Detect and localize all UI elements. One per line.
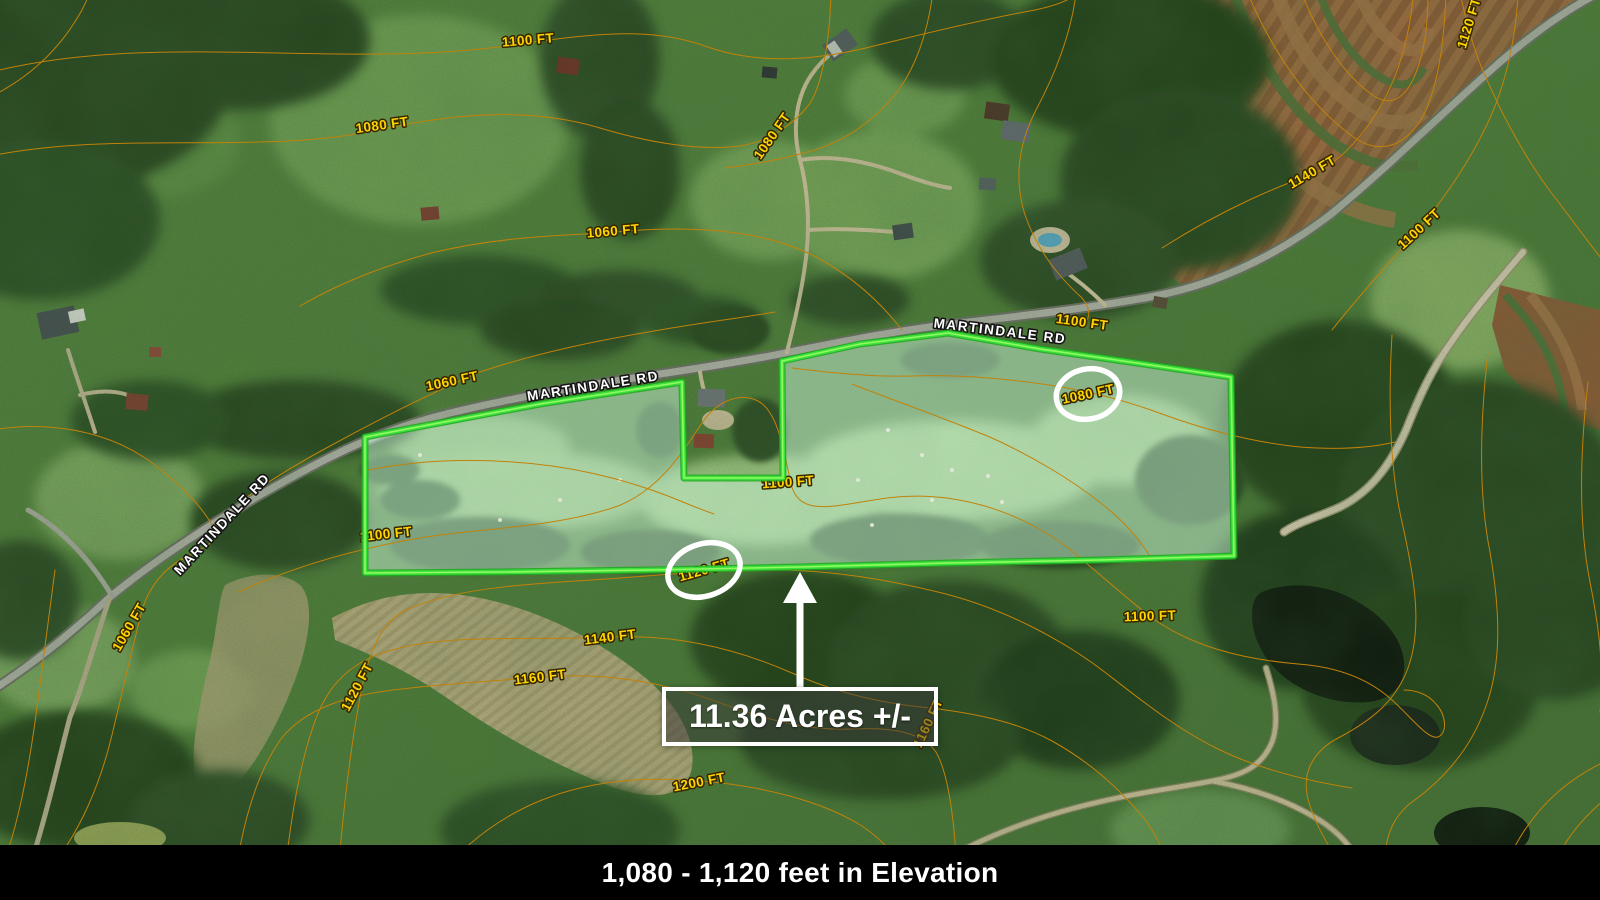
acreage-label: 11.36 Acres +/- [689, 698, 911, 735]
elevation-range-label: 1,080 - 1,120 feet in Elevation [602, 857, 999, 889]
acreage-callout: 11.36 Acres +/- [662, 687, 938, 746]
contour-elevation-label: 1100 FT [1124, 608, 1177, 625]
elevation-footer-bar: 1,080 - 1,120 feet in Elevation [0, 845, 1600, 900]
property-aerial-map: 1100 FT1080 FT1080 FT1060 FT1060 FT1100 … [0, 0, 1600, 900]
